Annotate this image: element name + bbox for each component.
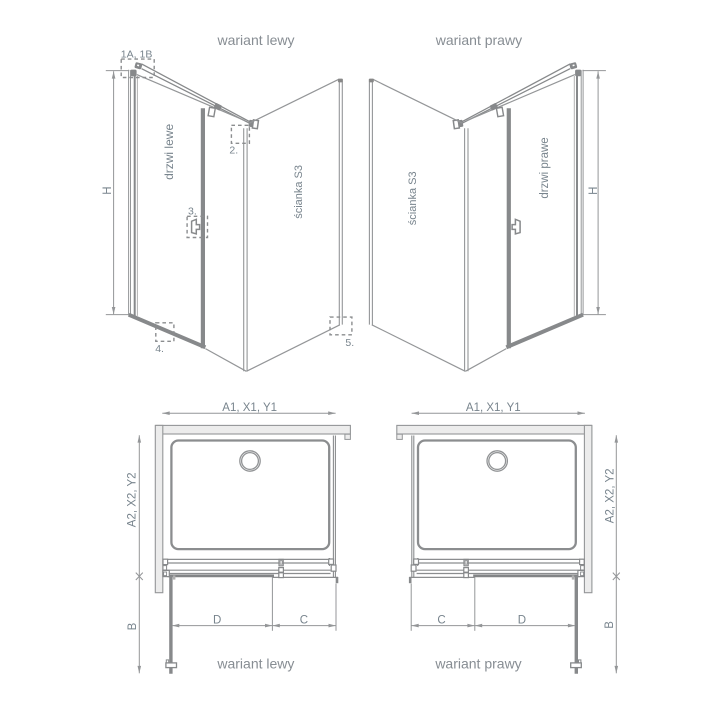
svg-text:wariant lewy: wariant lewy: [216, 655, 294, 671]
svg-text:wariant prawy: wariant prawy: [435, 32, 522, 48]
svg-text:wariant lewy: wariant lewy: [216, 32, 294, 48]
svg-text:B: B: [127, 622, 139, 630]
svg-text:4.: 4.: [155, 343, 164, 355]
svg-text:D: D: [518, 614, 526, 626]
svg-text:3.: 3.: [188, 205, 197, 217]
svg-text:A2, X2, Y2: A2, X2, Y2: [127, 472, 139, 527]
svg-text:C: C: [300, 614, 308, 626]
svg-text:A1, X1, Y1: A1, X1, Y1: [222, 402, 277, 414]
svg-text:D: D: [213, 615, 221, 627]
svg-text:5.: 5.: [345, 337, 354, 349]
svg-text:A1, X1, Y1: A1, X1, Y1: [466, 402, 521, 414]
svg-text:B: B: [604, 621, 616, 629]
svg-text:drzwi lewe: drzwi lewe: [162, 124, 176, 180]
svg-text:1A, 1B: 1A, 1B: [121, 49, 153, 61]
svg-text:ścianka S3: ścianka S3: [293, 165, 305, 219]
svg-text:H: H: [588, 187, 600, 195]
svg-text:C: C: [437, 614, 445, 626]
svg-text:wariant prawy: wariant prawy: [434, 656, 521, 672]
svg-text:H: H: [102, 186, 114, 194]
svg-text:ścianka S3: ścianka S3: [407, 171, 419, 225]
svg-text:drzwi prawe: drzwi prawe: [539, 137, 551, 198]
svg-text:2.: 2.: [229, 145, 238, 157]
svg-text:A2, X2, Y2: A2, X2, Y2: [605, 468, 617, 523]
